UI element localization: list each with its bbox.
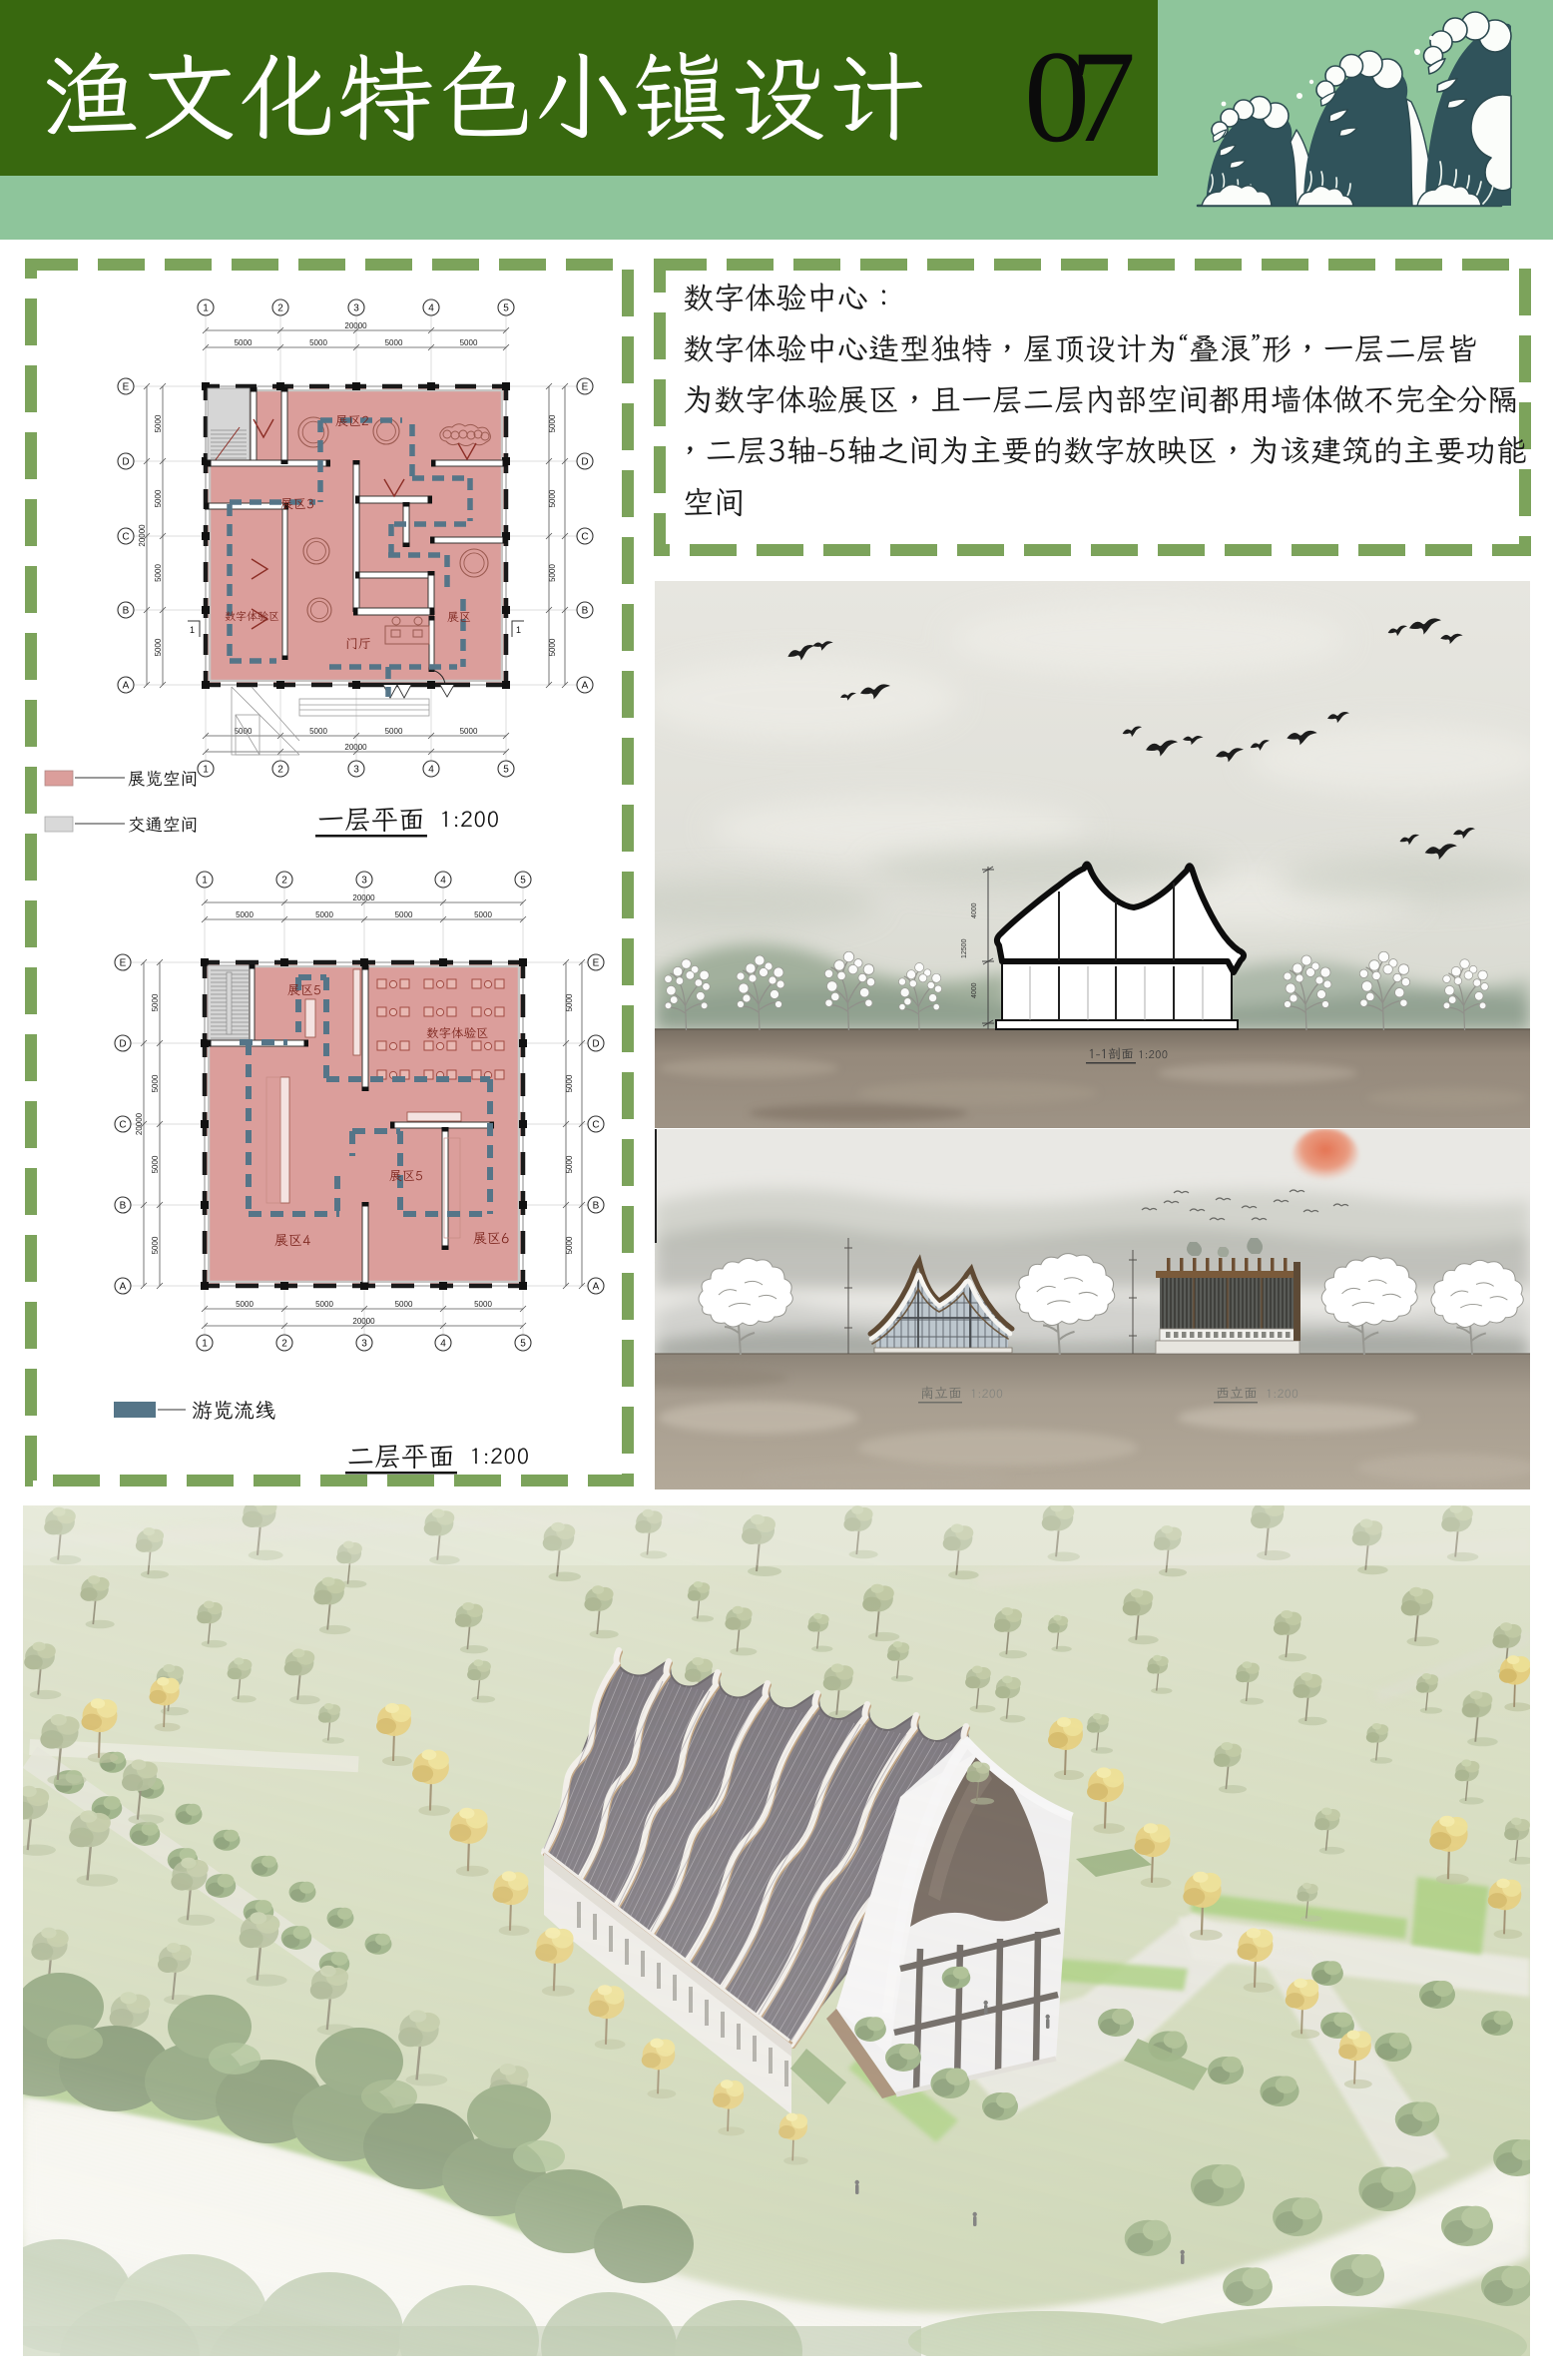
svg-text:5000: 5000 [385,338,403,347]
svg-text:5000: 5000 [154,414,163,432]
svg-text:5000: 5000 [154,638,163,656]
svg-text:C: C [592,1120,599,1131]
svg-text:20000: 20000 [352,1317,375,1326]
svg-text:5000: 5000 [151,1074,160,1092]
svg-text:2: 2 [277,765,283,776]
svg-text:5000: 5000 [474,910,492,919]
svg-text:1: 1 [516,625,521,635]
svg-text:5: 5 [520,876,526,887]
svg-text:3: 3 [361,876,367,887]
svg-text:5000: 5000 [236,910,254,919]
svg-text:5000: 5000 [235,338,253,347]
svg-text:5000: 5000 [154,489,163,507]
svg-text:1: 1 [202,876,208,887]
svg-text:A: A [120,1282,127,1293]
svg-text:5000: 5000 [151,1155,160,1173]
svg-text:5000: 5000 [548,414,557,432]
svg-text:5000: 5000 [565,993,574,1011]
svg-text:20000: 20000 [135,1112,144,1135]
svg-text:12500: 12500 [961,938,968,958]
svg-text:5: 5 [503,303,509,314]
svg-text:D: D [592,1039,599,1050]
svg-text:A: A [593,1282,600,1293]
svg-text:4: 4 [440,876,446,887]
svg-text:5000: 5000 [309,727,327,736]
svg-text:5: 5 [520,1339,526,1350]
svg-text:3: 3 [353,303,359,314]
svg-text:E: E [593,958,600,969]
svg-text:E: E [123,382,130,393]
svg-text:D: D [122,457,129,468]
svg-text:E: E [582,382,589,393]
svg-text:A: A [582,681,589,692]
svg-text:5000: 5000 [565,1236,574,1254]
svg-text:B: B [123,606,130,617]
svg-text:4: 4 [440,1339,446,1350]
svg-text:A: A [123,681,130,692]
svg-text:3: 3 [353,765,359,776]
svg-text:C: C [581,532,588,543]
svg-text:5000: 5000 [151,993,160,1011]
svg-text:5000: 5000 [236,1300,254,1309]
svg-text:D: D [581,457,588,468]
svg-text:5000: 5000 [385,727,403,736]
svg-text:07: 07 [1024,23,1136,170]
svg-text:1: 1 [203,765,209,776]
svg-text:5: 5 [503,765,509,776]
svg-text:5000: 5000 [154,564,163,582]
svg-text:2: 2 [281,1339,287,1350]
svg-text:5000: 5000 [548,638,557,656]
svg-text:C: C [122,532,129,543]
svg-text:1: 1 [203,303,209,314]
svg-text:4000: 4000 [971,902,978,918]
svg-text:5000: 5000 [309,338,327,347]
svg-text:5000: 5000 [315,1300,333,1309]
svg-text:5000: 5000 [548,564,557,582]
svg-text:5000: 5000 [565,1074,574,1092]
svg-text:B: B [582,606,589,617]
svg-text:4: 4 [428,765,434,776]
svg-text:20000: 20000 [138,524,147,547]
svg-text:E: E [120,958,127,969]
svg-text:2: 2 [281,876,287,887]
svg-text:1: 1 [190,625,195,635]
svg-text:4: 4 [428,303,434,314]
svg-text:5000: 5000 [460,338,478,347]
svg-text:20000: 20000 [344,743,367,752]
svg-text:5000: 5000 [565,1155,574,1173]
svg-text:1: 1 [202,1339,208,1350]
svg-text:3: 3 [361,1339,367,1350]
svg-text:5000: 5000 [548,489,557,507]
svg-text:20000: 20000 [344,321,367,330]
svg-text:5000: 5000 [395,910,413,919]
svg-text:C: C [119,1120,126,1131]
svg-text:20000: 20000 [352,893,375,902]
svg-text:5000: 5000 [460,727,478,736]
svg-text:D: D [119,1039,126,1050]
svg-text:B: B [593,1201,600,1212]
svg-text:5000: 5000 [474,1300,492,1309]
svg-text:5000: 5000 [151,1236,160,1254]
svg-text:2: 2 [277,303,283,314]
svg-text:5000: 5000 [315,910,333,919]
svg-text:5000: 5000 [395,1300,413,1309]
svg-text:4000: 4000 [971,982,978,998]
svg-text:B: B [120,1201,127,1212]
